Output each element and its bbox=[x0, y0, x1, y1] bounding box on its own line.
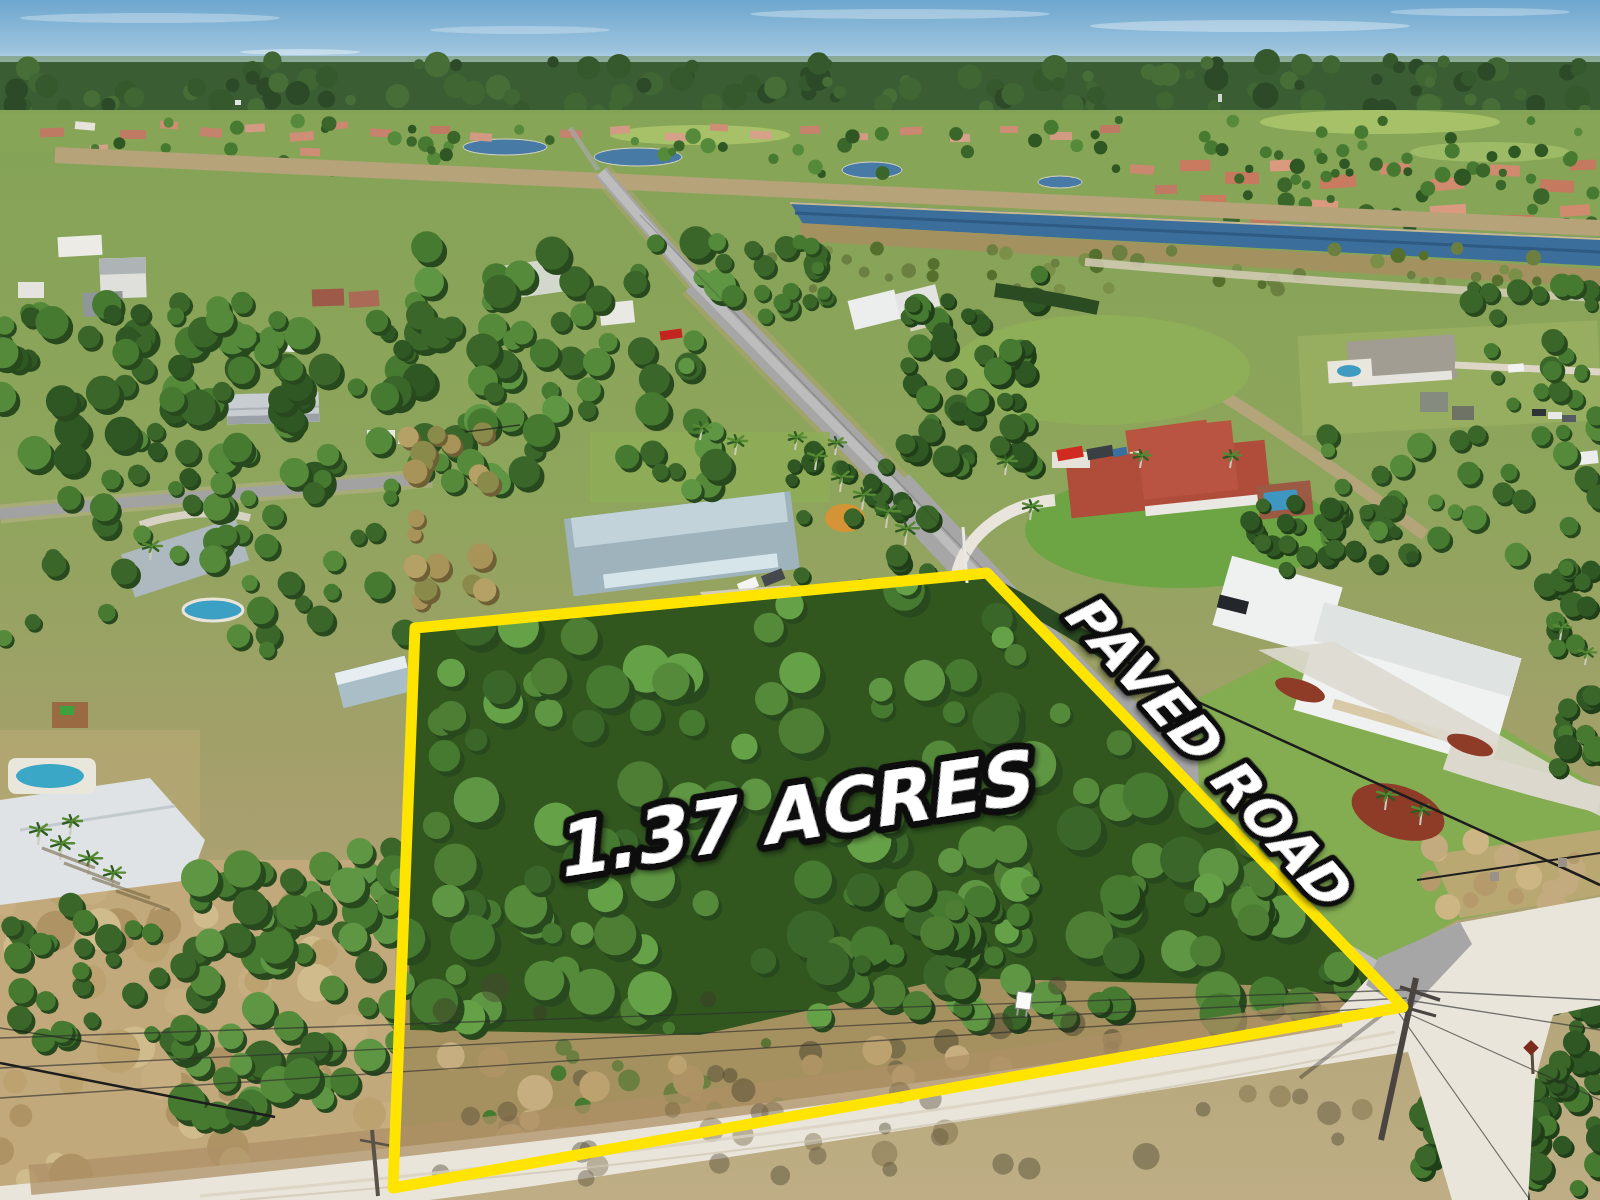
playground-slide bbox=[60, 706, 74, 715]
house-small-white bbox=[18, 282, 44, 298]
white-car-b bbox=[1508, 363, 1525, 373]
house-brown-roof-a bbox=[312, 288, 345, 306]
horizon-building bbox=[235, 100, 241, 105]
aerial-photo: 1.37 ACRES PAVED ROAD bbox=[0, 0, 1600, 1200]
shed-b bbox=[1452, 406, 1474, 420]
house-white-left bbox=[58, 235, 103, 257]
car-row-c bbox=[1562, 415, 1576, 422]
car-row-a bbox=[1532, 409, 1546, 416]
horizon-tower bbox=[1218, 94, 1222, 102]
house-brown-roof-b bbox=[348, 290, 379, 308]
shed-a bbox=[1420, 392, 1448, 412]
car-row-b bbox=[1548, 412, 1562, 419]
pool-left bbox=[183, 599, 243, 621]
gate-pillar-b bbox=[1558, 858, 1567, 867]
pool-bottom-left bbox=[16, 764, 84, 788]
gate-pillar-a bbox=[1490, 872, 1499, 881]
aerial-photo-canvas: 1.37 ACRES PAVED ROAD bbox=[0, 0, 1600, 1200]
pool-gray-house bbox=[1337, 365, 1361, 377]
